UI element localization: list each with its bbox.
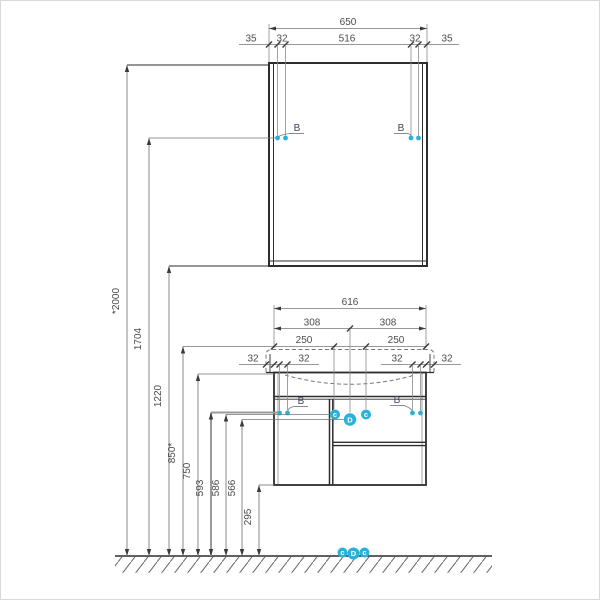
dim-label-586: 586	[211, 479, 222, 496]
floor-hatch	[115, 557, 492, 573]
hanger-point	[410, 411, 415, 416]
dim-label-516: 516	[339, 34, 356, 45]
callout-b-mirror-right: B	[398, 123, 405, 134]
dim-label-650: 650	[340, 17, 357, 28]
svg-text:c: c	[364, 410, 368, 419]
dim-label-32-overhang-left: 32	[247, 354, 259, 365]
dim-label-750: 750	[182, 462, 193, 479]
dim-label-2000: *2000	[111, 287, 122, 314]
callout-b-mirror-left: B	[294, 123, 301, 134]
callout-b-cabinet-right: B	[394, 395, 401, 406]
mirror-hanger-points: B B	[275, 123, 421, 140]
dim-label-250-right: 250	[388, 335, 405, 346]
hanger-point	[418, 411, 423, 416]
dim-label-308-left: 308	[304, 318, 321, 329]
dim-cabinet-250s: 250 250	[183, 335, 429, 350]
dim-label-850: 850*	[167, 443, 178, 464]
hanger-point	[416, 136, 421, 141]
dim-label-566: 566	[227, 479, 238, 496]
svg-text:c: c	[362, 548, 366, 557]
dim-label-32-holes-left: 32	[298, 354, 310, 365]
dim-label-295: 295	[243, 508, 254, 525]
dim-label-35-left: 35	[245, 34, 257, 45]
dim-label-35-right: 35	[441, 34, 453, 45]
installation-drawing: 650 35 32 516 32 35 B B	[1, 1, 600, 601]
dim-label-32-holes-right: 32	[391, 354, 403, 365]
hanger-point	[409, 136, 414, 141]
svg-text:c: c	[333, 410, 337, 419]
callout-b-cabinet-left: B	[298, 396, 305, 407]
cabinet-connection-badges: c D c	[330, 410, 371, 426]
dim-label-616: 616	[342, 297, 359, 308]
floor-line	[115, 556, 492, 573]
dim-label-32-right: 32	[409, 34, 421, 45]
height-dimensions: *2000 1704 1220 850* 750 593 58	[111, 65, 344, 556]
dim-label-1220: 1220	[153, 384, 164, 407]
dim-label-1704: 1704	[133, 327, 144, 350]
dim-mirror-subdivisions: 35 32 516 32 35	[239, 34, 459, 48]
dim-label-32-left: 32	[276, 34, 288, 45]
svg-text:c: c	[340, 548, 344, 557]
svg-text:D: D	[347, 415, 353, 424]
mirror-cabinet-outline	[269, 63, 427, 266]
dim-label-250-left: 250	[296, 335, 313, 346]
dim-label-32-overhang-right: 32	[441, 354, 453, 365]
hanger-point	[283, 136, 288, 141]
dim-label-308-right: 308	[380, 318, 397, 329]
dim-label-593: 593	[195, 479, 206, 496]
technical-drawing-page: 650 35 32 516 32 35 B B	[0, 0, 600, 600]
svg-text:D: D	[351, 549, 357, 558]
